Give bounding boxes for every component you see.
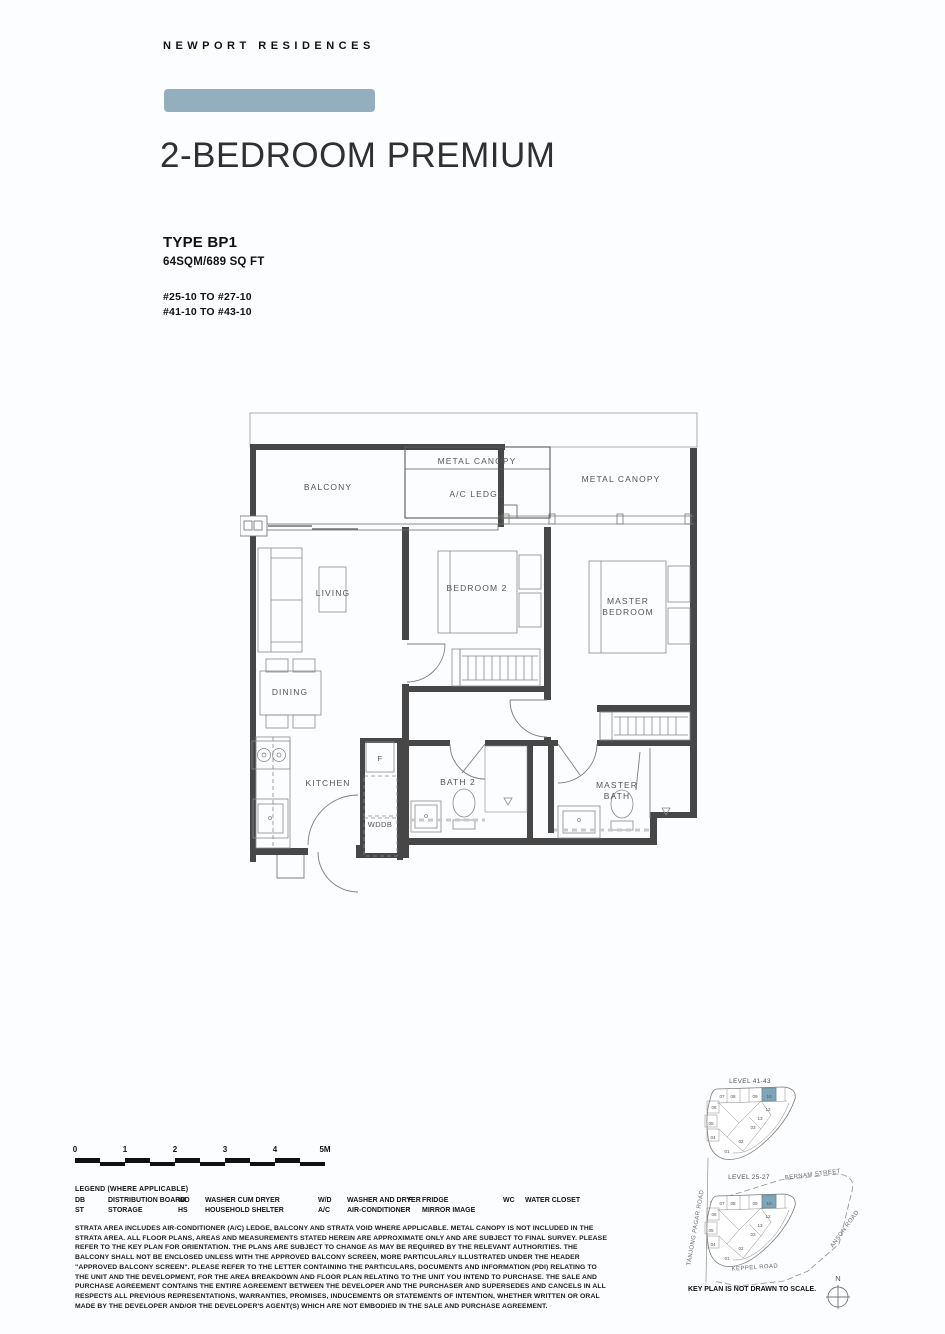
- keyplan-svg: BERNAM STREET ANSON ROAD KEPPEL ROAD TAN…: [680, 1060, 945, 1320]
- label-bath2: BATH 2: [440, 777, 476, 787]
- legend-column: W/DWASHER AND DRYER A/CAIR-CONDITIONER: [318, 1196, 421, 1215]
- legend-column: FFRIDGE 'MIRROR IMAGE: [408, 1196, 475, 1215]
- legend-column: WDWASHER CUM DRYER HSHOUSEHOLD SHELTER: [178, 1196, 284, 1215]
- unit-area: 64SQM/689 SQ FT: [163, 256, 264, 268]
- keyplan-unit: 01: [724, 1149, 730, 1154]
- legend-abbr: F: [408, 1196, 422, 1206]
- legend-label: FRIDGE: [422, 1196, 448, 1206]
- unit-info: TYPE BP1 64SQM/689 SQ FT #25-10 TO #27-1…: [163, 234, 264, 320]
- legend-column: DBDISTRIBUTION BOARD STSTORAGE: [75, 1196, 185, 1215]
- unit-stacks: #25-10 TO #27-10 #41-10 TO #43-10: [163, 290, 264, 320]
- legend: LEGEND (WHERE APPLICABLE) DBDISTRIBUTION…: [75, 1186, 655, 1226]
- label-master-bedroom: MASTER: [607, 596, 649, 606]
- scale-bar: 0 1 2 3 4 5M: [64, 1145, 354, 1171]
- legend-label: STORAGE: [108, 1206, 143, 1216]
- north-label: N: [835, 1274, 840, 1283]
- label-living: LIVING: [316, 588, 350, 598]
- label-master-bath: MASTER: [596, 780, 638, 790]
- disclaimer-text: STRATA AREA INCLUDES AIR-CONDITIONER (A/…: [75, 1224, 609, 1311]
- keyplan-note: KEY PLAN IS NOT DRAWN TO SCALE.: [688, 1286, 816, 1293]
- scale-tick: 1: [110, 1145, 140, 1154]
- keyplan-level-top: LEVEL 41-43: [729, 1078, 771, 1085]
- brand-banner: [164, 89, 375, 112]
- label-metal-canopy-right: METAL CANOPY: [582, 474, 661, 484]
- keyplan-unit: 10: [766, 1094, 772, 1099]
- keyplan-unit: 06: [711, 1105, 717, 1110]
- keyplan-unit: 04: [710, 1135, 716, 1140]
- legend-abbr: WC: [503, 1196, 525, 1206]
- door-swings: [277, 644, 640, 892]
- legend-label: AIR-CONDITIONER: [347, 1206, 410, 1216]
- scale-bar-strip: [75, 1158, 325, 1166]
- legend-abbr: DB: [75, 1196, 108, 1206]
- legend-abbr: A/C: [318, 1206, 347, 1216]
- page-title: 2-BEDROOM PREMIUM: [160, 136, 555, 176]
- road-label-anson: ANSON ROAD: [830, 1209, 861, 1249]
- road-label-tanjong-pagar: TANJONG PAGAR ROAD: [686, 1189, 705, 1266]
- balcony-parapet: [240, 516, 498, 536]
- scale-tick: 4: [260, 1145, 290, 1154]
- keyplan-building-lower: [705, 1194, 795, 1267]
- label-kitchen: KITCHEN: [305, 778, 350, 788]
- legend-label: MIRROR IMAGE: [422, 1206, 475, 1216]
- keyplan-unit: 07: [719, 1094, 725, 1099]
- keyplan-building: 07 08 09 10 12 13 03 02 01 04 05 06: [705, 1087, 795, 1160]
- legend-label: WATER CLOSET: [525, 1196, 580, 1206]
- scale-tick: 5M: [310, 1145, 340, 1154]
- label-ac-ledge: A/C LEDGE: [449, 489, 504, 499]
- canopy-outline: [250, 413, 697, 447]
- legend-label: DISTRIBUTION BOARD: [108, 1196, 185, 1206]
- keyplan-unit: 13: [757, 1116, 763, 1121]
- legend-label: WASHER CUM DRYER: [205, 1196, 280, 1206]
- keyplan-unit: 12: [765, 1107, 771, 1112]
- keyplan-unit: 02: [738, 1139, 744, 1144]
- label-dining: DINING: [272, 687, 308, 697]
- legend-title: LEGEND (WHERE APPLICABLE): [75, 1186, 188, 1193]
- legend-abbr: HS: [178, 1206, 205, 1216]
- legend-abbr: WD: [178, 1196, 205, 1206]
- scale-tick: 3: [210, 1145, 240, 1154]
- scale-tick: 2: [160, 1145, 190, 1154]
- keyplan-unit: 09: [752, 1094, 758, 1099]
- keyplan-unit: 08: [730, 1094, 736, 1099]
- keyplan-unit: 05: [708, 1121, 714, 1126]
- unit-stack-line: #41-10 TO #43-10: [163, 305, 264, 320]
- legend-abbr: ': [408, 1206, 422, 1216]
- brand-logo: NEWPORT RESIDENCES: [163, 40, 375, 52]
- canopy-support-band: [498, 514, 694, 524]
- keyplan-level-bottom: LEVEL 25-27: [728, 1174, 770, 1181]
- label-fridge: F: [378, 754, 383, 763]
- keyplan-unit: 03: [750, 1125, 756, 1130]
- north-compass-icon: [826, 1285, 850, 1309]
- unit-stack-line: #25-10 TO #27-10: [163, 290, 264, 305]
- legend-abbr: W/D: [318, 1196, 347, 1206]
- legend-label: HOUSEHOLD SHELTER: [205, 1206, 284, 1216]
- label-master-bath: BATH: [604, 791, 630, 801]
- scale-tick: 0: [60, 1145, 90, 1154]
- label-master-bedroom: BEDROOM: [602, 607, 654, 617]
- brochure-page: NEWPORT RESIDENCES 2-BEDROOM PREMIUM TYP…: [0, 0, 945, 1334]
- label-balcony: BALCONY: [304, 482, 352, 492]
- floorplan-svg: METAL CANOPY A/C LEDGE METAL CANOPY BALC…: [240, 408, 702, 902]
- legend-abbr: ST: [75, 1206, 108, 1216]
- label-metal-canopy-left: METAL CANOPY: [438, 456, 517, 466]
- legend-column: WCWATER CLOSET: [503, 1196, 580, 1206]
- label-bedroom2: BEDROOM 2: [447, 583, 508, 593]
- road-label-bernam: BERNAM STREET: [785, 1169, 842, 1182]
- label-wddb: WDDB: [368, 820, 393, 829]
- unit-type: TYPE BP1: [163, 234, 264, 251]
